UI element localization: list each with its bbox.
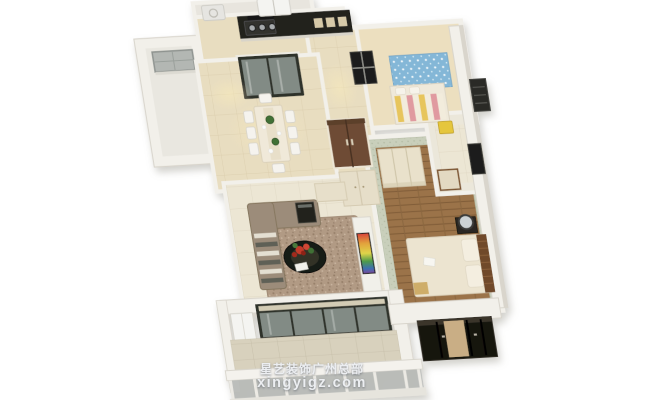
dining-chair <box>272 163 285 173</box>
dining-chair <box>246 127 257 140</box>
stove-burner <box>268 23 275 30</box>
living-cabinet <box>314 182 347 202</box>
stool-yellow <box>438 121 454 134</box>
refrigerator <box>257 0 292 16</box>
bed-throw <box>413 282 429 295</box>
laptop <box>295 202 316 223</box>
bathroom-door <box>437 169 460 190</box>
floor-plan-svg <box>0 0 650 400</box>
watermark: 星艺装饰广州总部 xingyigz.com <box>250 363 374 391</box>
floor-plan-render: 星艺装饰广州总部 xingyigz.com <box>0 0 650 400</box>
kids-bed <box>390 83 450 124</box>
washing-machine <box>201 4 225 20</box>
master-bed <box>406 234 495 297</box>
dining-chair <box>243 111 254 124</box>
wardrobe-black <box>417 316 497 360</box>
dining-chair <box>285 110 296 123</box>
watermark-line-1: 星艺装饰广州总部 <box>250 363 374 376</box>
dining-chair <box>248 143 259 156</box>
watermark-line-2: xingyigz.com <box>250 376 374 391</box>
book-on-bed <box>424 257 436 267</box>
master-closet <box>378 147 426 188</box>
dining-chair <box>290 142 301 155</box>
apartment <box>129 0 535 400</box>
dining-chair <box>259 93 272 103</box>
hallway-wardrobe <box>327 118 373 168</box>
stove-burner <box>258 24 265 31</box>
dining-chair <box>287 126 298 139</box>
stove-burner <box>248 25 255 32</box>
striped-bedding <box>394 93 446 122</box>
dresser <box>455 214 478 233</box>
